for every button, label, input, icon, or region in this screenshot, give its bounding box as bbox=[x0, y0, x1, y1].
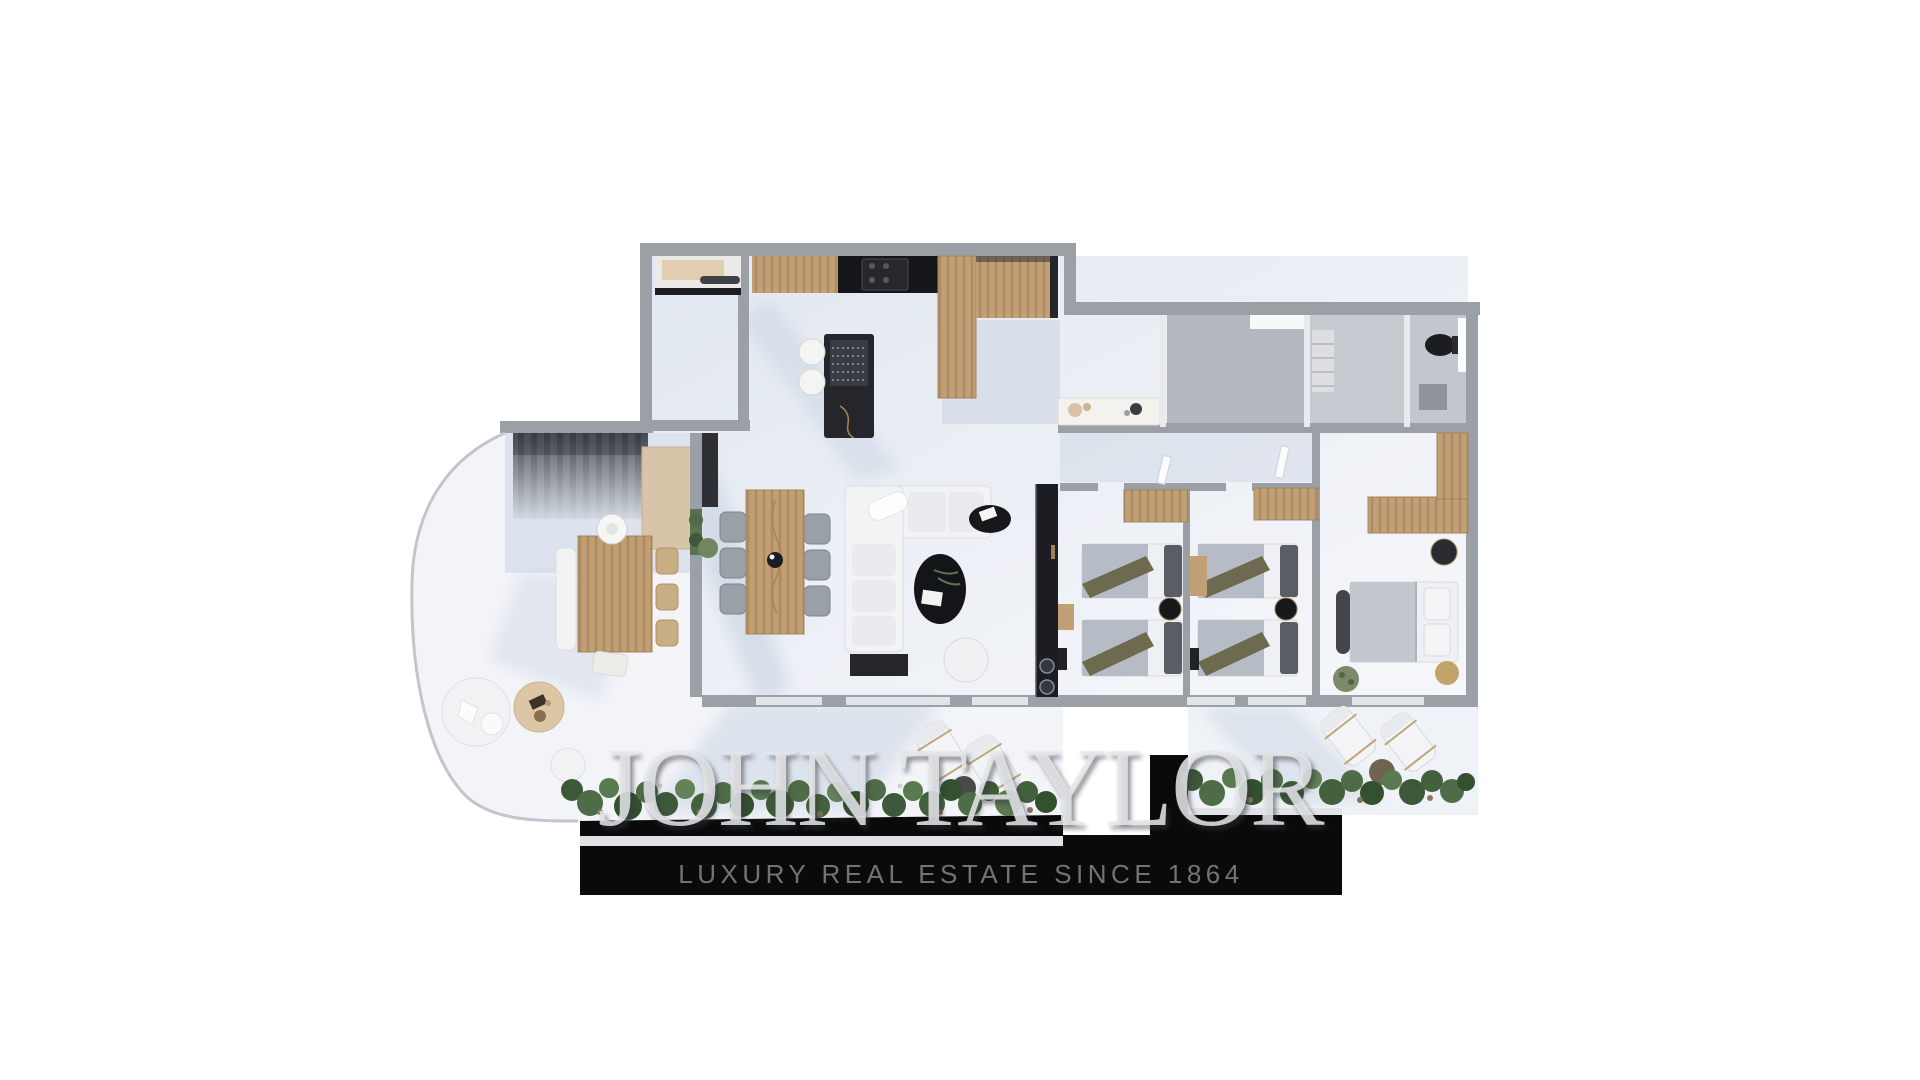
tv bbox=[1190, 648, 1199, 670]
bar-stool bbox=[799, 339, 825, 365]
hall-console bbox=[1058, 398, 1160, 425]
desk bbox=[1190, 556, 1207, 596]
builtin-shelf bbox=[702, 433, 718, 507]
floorplan-screenshot: LUXURY REAL ESTATE SINCE 1864 bbox=[0, 0, 1920, 1080]
sliding-door-partition bbox=[1036, 484, 1058, 697]
plant bbox=[1333, 666, 1359, 692]
nightstand bbox=[1159, 598, 1181, 620]
tv-console bbox=[850, 654, 908, 676]
bathrooms bbox=[1160, 315, 1466, 427]
gold-stool bbox=[1435, 661, 1459, 685]
bed-bench bbox=[1336, 590, 1350, 654]
tv bbox=[1058, 648, 1067, 670]
desk bbox=[1058, 604, 1074, 630]
nightstand bbox=[1275, 598, 1297, 620]
towel-shelves bbox=[1312, 330, 1334, 392]
toilet bbox=[1425, 334, 1455, 356]
plant bbox=[698, 538, 718, 558]
bath-mat bbox=[1419, 384, 1447, 410]
floorplan-render bbox=[0, 0, 1920, 1080]
entry-door bbox=[1458, 318, 1466, 372]
john-taylor-wordmark: JOHN TAYLOR bbox=[597, 724, 1322, 853]
nightstand bbox=[1431, 539, 1457, 565]
pouf bbox=[944, 638, 988, 682]
bar-stool bbox=[799, 369, 825, 395]
utility-room bbox=[655, 256, 741, 295]
coffee-table bbox=[914, 554, 966, 624]
